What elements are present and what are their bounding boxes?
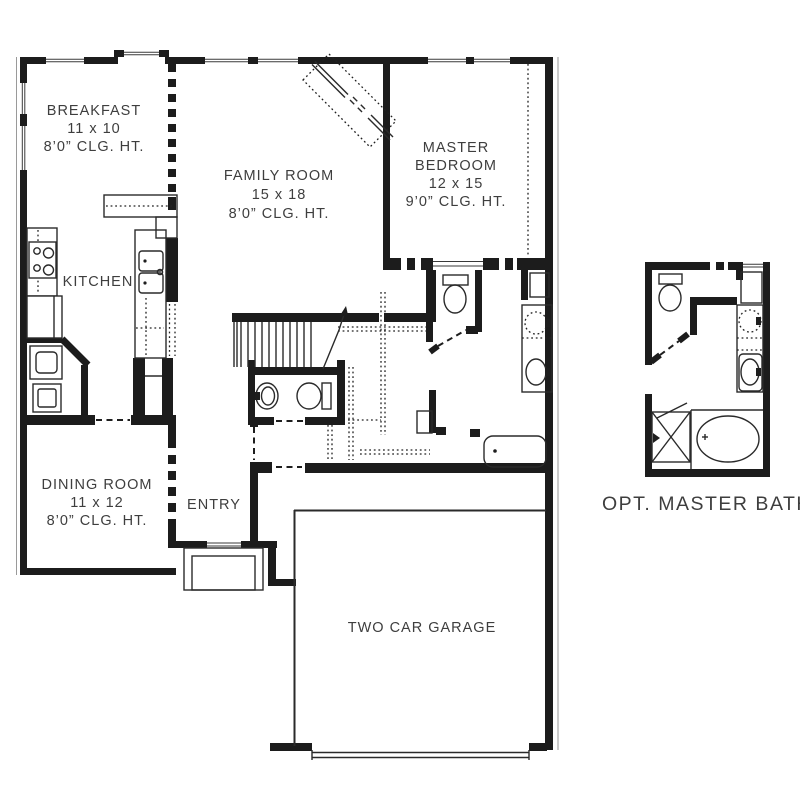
fireplace: [303, 54, 396, 147]
room-label-master-line1: MASTER: [423, 140, 489, 156]
opt-linen-closet: [741, 272, 762, 303]
opt-vanity: [737, 305, 763, 392]
opt-garden-tub: [691, 410, 763, 469]
room-ceiling-dining: 8’0” CLG. HT.: [47, 513, 148, 529]
room-ceiling-breakfast: 8’0” CLG. HT.: [44, 139, 145, 155]
room-label-dining: DINING ROOM: [42, 477, 153, 493]
room-dims-family: 15 x 18: [252, 187, 307, 203]
range-cooktop: [29, 242, 56, 278]
linen-closet: [417, 273, 549, 433]
room-label-garage: TWO CAR GARAGE: [348, 620, 497, 636]
room-ceiling-family: 8’0” CLG. HT.: [229, 206, 330, 222]
refrigerator: [27, 296, 62, 338]
garage-door: [312, 750, 529, 760]
room-dims-breakfast: 11 x 10: [67, 121, 121, 137]
room-dims-master: 12 x 15: [429, 176, 484, 192]
room-label-opt-master-bath: OPT. MASTER BATH: [602, 493, 800, 515]
floor-plan-page: BREAKFAST 11 x 10 8’0” CLG. HT. KITCHEN …: [0, 0, 800, 800]
floor-plan-drawing: BREAKFAST 11 x 10 8’0” CLG. HT. KITCHEN …: [0, 0, 800, 800]
powder-sink: [255, 383, 278, 409]
entry-stoop: [184, 548, 263, 590]
room-label-kitchen: KITCHEN: [63, 274, 134, 290]
opt-shower: [652, 403, 690, 462]
room-label-breakfast: BREAKFAST: [47, 103, 141, 119]
opt-master-bath-detail: [645, 262, 770, 477]
powder-toilet: [297, 383, 331, 409]
bathtub: [484, 436, 546, 467]
master-toilet: [443, 275, 468, 313]
room-label-family: FAMILY ROOM: [224, 168, 334, 184]
room-ceiling-master: 9’0” CLG. HT.: [406, 194, 507, 210]
opt-toilet: [659, 274, 682, 311]
room-dims-dining: 11 x 12: [70, 495, 124, 511]
room-label-master-line2: BEDROOM: [415, 158, 497, 174]
washer-dryer: [30, 346, 62, 412]
kitchen-sink: [139, 251, 163, 293]
opt-bath-walls: [645, 262, 770, 477]
room-label-entry: ENTRY: [187, 497, 241, 513]
